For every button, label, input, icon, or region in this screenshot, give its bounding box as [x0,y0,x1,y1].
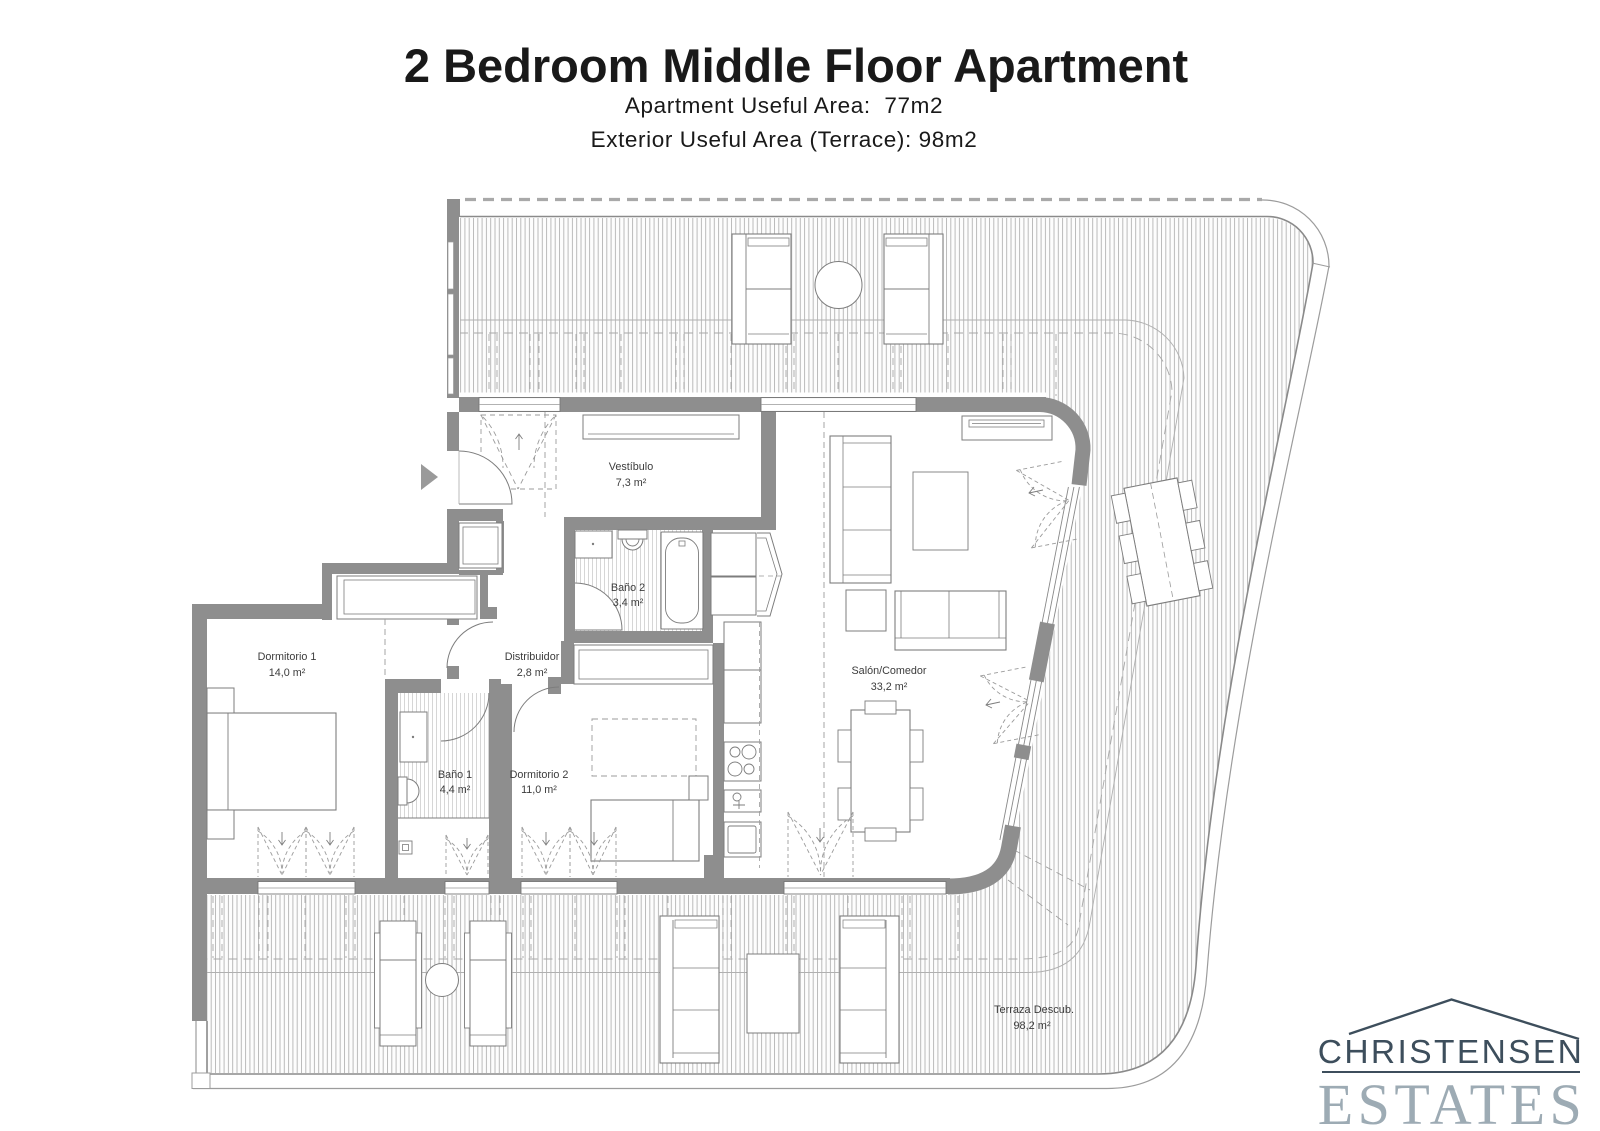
svg-text:7,3 m²: 7,3 m² [616,477,647,489]
svg-text:Salón/Comedor: Salón/Comedor [851,665,926,677]
svg-text:Apartment Useful Area: 77m2: Apartment Useful Area: 77m2 [625,93,943,118]
svg-text:4,4 m²: 4,4 m² [440,784,471,796]
svg-text:3,4 m²: 3,4 m² [613,597,644,609]
svg-text:11,0 m²: 11,0 m² [521,784,557,796]
svg-text:CHRISTENSEN: CHRISTENSEN [1318,1034,1585,1071]
svg-text:14,0 m²: 14,0 m² [269,667,306,679]
svg-text:Dormitorio 2: Dormitorio 2 [510,769,569,781]
svg-text:ESTATES: ESTATES [1318,1072,1587,1131]
svg-text:Vestíbulo: Vestíbulo [609,461,653,473]
svg-text:33,2 m²: 33,2 m² [871,681,908,693]
svg-text:Exterior Useful Area (Terrace): Exterior Useful Area (Terrace): 98m2 [591,127,978,152]
svg-text:Dormitorio 1: Dormitorio 1 [258,651,317,663]
svg-text:Baño 2: Baño 2 [611,582,645,594]
svg-text:Distribuidor: Distribuidor [505,651,560,663]
svg-text:Terraza Descub.: Terraza Descub. [994,1004,1074,1016]
svg-text:2,8 m²: 2,8 m² [517,667,548,679]
svg-text:2 Bedroom Middle Floor Apartme: 2 Bedroom Middle Floor Apartment [404,39,1189,92]
svg-text:98,2 m²: 98,2 m² [1013,1020,1051,1032]
svg-text:Baño 1: Baño 1 [438,769,472,781]
